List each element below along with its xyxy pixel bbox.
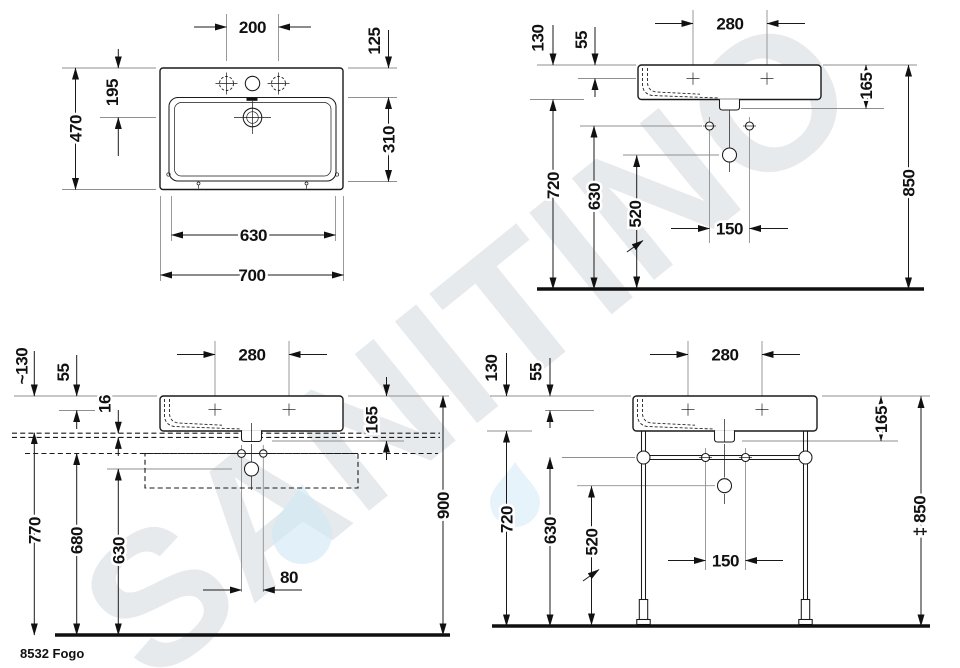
trap-hole: [718, 479, 732, 493]
dim-770-label: 770: [25, 517, 44, 544]
dim-280-label: 280: [711, 345, 738, 364]
dim-130-label: 130: [528, 24, 547, 51]
technical-drawing-page: SANITINO: [0, 0, 960, 668]
dim-150-label: 150: [716, 219, 743, 238]
dim-720-label: 720: [497, 506, 516, 533]
drain-outlet: [720, 99, 740, 110]
dim-200-label: 200: [239, 18, 266, 37]
dim-165-label: 165: [872, 406, 891, 433]
dim-125-label: 125: [365, 27, 384, 54]
dim-55-label: 55: [572, 31, 591, 49]
dim-16-label: 16: [95, 395, 114, 413]
overflow-slot: [247, 98, 258, 101]
rail-knob: [637, 451, 650, 464]
dim-850-label: ‡ 850: [910, 496, 929, 537]
product-code: 8532 Fogo: [20, 646, 84, 661]
dim-680-label: 680: [68, 527, 87, 554]
dim-720-label: 720: [544, 172, 563, 199]
dim-280-label: 280: [716, 14, 743, 33]
trap-hole: [245, 462, 259, 476]
dim-165-label: 165: [362, 406, 381, 433]
dim-850-label: 850: [899, 169, 918, 196]
trap-hole: [723, 148, 737, 162]
dim-700-label: 700: [238, 266, 265, 285]
dim-150-label: 150: [712, 551, 739, 570]
dim-470-label: 470: [66, 115, 85, 142]
dim-520-label: 520: [626, 200, 645, 227]
dim-80-label: 80: [280, 568, 298, 587]
dim-55-label: 55: [526, 363, 545, 381]
dim-630-label: 630: [240, 226, 267, 245]
dim-280-label: 280: [238, 345, 265, 364]
dim-900-label: 900: [434, 492, 453, 519]
dim-165-label: 165: [857, 72, 876, 99]
dim-630-label: 630: [585, 183, 604, 210]
dim-55-label: 55: [54, 363, 73, 381]
dim-130-label: 130: [482, 354, 501, 381]
plan-sink-drawing: [160, 68, 343, 190]
dim-195-label: 195: [103, 79, 122, 106]
sink-body: [638, 65, 821, 100]
dim-630-label: 630: [109, 537, 128, 564]
dim-630-label: 630: [541, 517, 560, 544]
sink-body: [633, 396, 817, 431]
dim-310-label: 310: [379, 126, 398, 153]
dim-130-label: ~130: [12, 348, 31, 385]
drawing-canvas: SANITINO: [0, 0, 960, 668]
rail-knob: [799, 451, 812, 464]
dim-520-label: 520: [582, 528, 601, 555]
